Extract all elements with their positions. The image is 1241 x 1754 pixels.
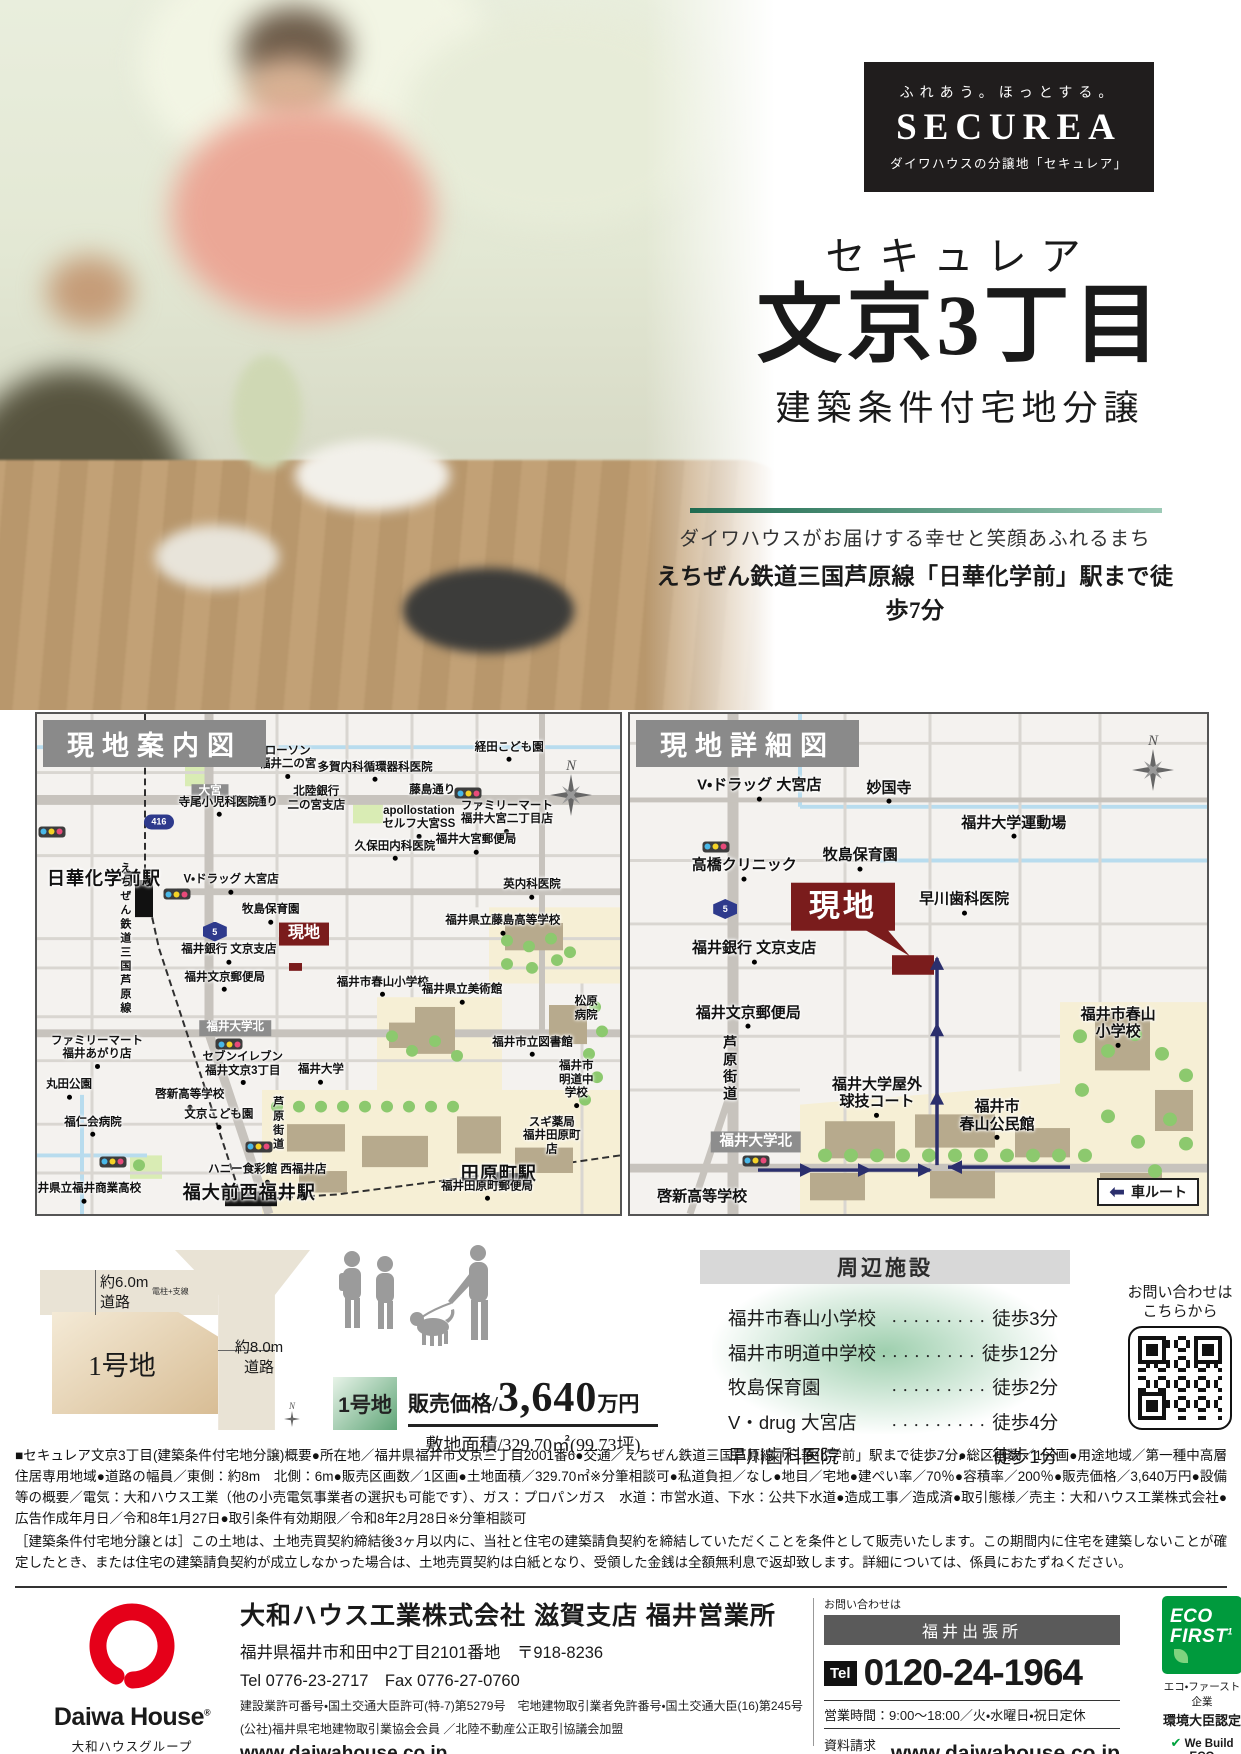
plot-diagram: 1号地 約6.0m 道路 約8.0m 道路 電柱+支線 N [40, 1250, 310, 1430]
map-label: 福大前西福井駅 [183, 1182, 316, 1203]
company-name: 大和ハウス工業株式会社 滋賀支店 福井営業所 [240, 1596, 805, 1632]
request-url: www.daiwahouse.co.jp [891, 1742, 1120, 1754]
brand-subtitle: ダイワハウスの分譲地「セキュレア」 [890, 153, 1128, 172]
traffic-light-icon [38, 826, 65, 837]
price-lot-badge: 1号地 [333, 1377, 397, 1430]
facilities-header: 周辺施設 [700, 1250, 1070, 1284]
map-label: 福井銀行 文京支店 [692, 940, 816, 965]
catch-line1: ダイワハウスがお届けする幸せと笑顔あふれるまち [655, 522, 1175, 551]
property-overview: ■セキュレア文京3丁目(建築条件付宅地分譲)概要●所在地／福井県福井市文京三丁目… [15, 1446, 1227, 1530]
title-condition: 建築条件付宅地分譲 [745, 380, 1175, 431]
salad-jar [233, 355, 303, 469]
road-north-width: 約6.0m 道路 [100, 1273, 148, 1312]
plate [155, 525, 279, 589]
lot-1: 1号地 [52, 1312, 218, 1414]
map-label: 福井県立美術館 [422, 984, 503, 1005]
skillet [403, 568, 574, 653]
map-label: 芦原街道 [271, 1096, 284, 1152]
title-name: 文京3丁目 [745, 279, 1175, 372]
phone-number: 0120-24-1964 [864, 1652, 1082, 1694]
map-label: 久保田内科医院 [355, 840, 436, 861]
map-label: 寺尾小児科医院 [179, 796, 260, 817]
map-label: 牧島保育園 [823, 847, 898, 872]
map-label: スギ薬局 福井田原町店 [518, 1116, 586, 1157]
map-label: 福井市明道中学校 [554, 1060, 598, 1108]
map-label: 福井市立図書館 [492, 1036, 573, 1057]
map-label: 福井県立藤島高等学校 [445, 915, 560, 936]
brand-tagline: ふれあう。ほっとする。 [900, 82, 1119, 102]
left-arrow-icon: ⬅ [1109, 1183, 1125, 1202]
lot-1-label: 1号地 [88, 1344, 156, 1383]
map-label: 日華化学前駅 [47, 868, 161, 889]
branch-office-bar: 福井出張所 [824, 1615, 1120, 1645]
map-label: えちぜん鉄道三国芦原線 [118, 862, 131, 1016]
company-url: www.daiwahouse.co.jp [240, 1743, 805, 1754]
business-hours: 営業時間：9:00～18:00／火・水曜日・祝日定休 [824, 1700, 1120, 1729]
price-label: 販売価格/ [408, 1392, 498, 1416]
map-label: 早川歯科医院 [919, 891, 1009, 916]
map-label: 丸田公園 [46, 1079, 92, 1100]
traffic-light-icon [216, 1039, 243, 1050]
plot-compass-icon: N [284, 1402, 300, 1432]
facility-row: V・drug 大宮店・・・・・・・・・徒歩4分 [728, 1409, 1058, 1435]
route-badge: 416 [144, 814, 174, 829]
eco-first-logo: ECO FIRST1 [1162, 1596, 1241, 1674]
main-title: セキュレア 文京3丁目 建築条件付宅地分譲 [745, 235, 1175, 431]
price-block: 販売価格/3,640万円 敷地面積/329.70㎡(99.73坪) [408, 1374, 658, 1457]
we-build-eco: ✔ We Build ECO [1160, 1735, 1241, 1754]
traffic-light-icon [245, 1141, 272, 1152]
daiwa-group-label: 大和ハウスグループ [52, 1736, 212, 1754]
map-label: 啓新高等学校 [155, 1089, 224, 1110]
facility-row: 福井市明道中学校・・・・・・・・・徒歩12分 [728, 1340, 1058, 1366]
eco-line-1: エコ・ファースト企業 [1160, 1679, 1241, 1709]
map-label: ハニー食彩館 西福井店 [208, 1164, 326, 1185]
tel-badge: Tel [824, 1661, 857, 1686]
daiwa-logo-block: Daiwa House® 大和ハウスグループ [52, 1598, 212, 1754]
license-line-1: 建設業許可番号・国土交通大臣許可(特-7)第5279号 宅地建物取引業者免許番号… [240, 1697, 805, 1714]
map-label: 藤島通り [409, 784, 455, 798]
map-label: 福井大学 [298, 1064, 344, 1085]
site-marker: 現地 [791, 882, 895, 931]
map-label: 牧島保育園 [242, 904, 300, 925]
footer-divider [813, 1598, 814, 1746]
map-right-header: 現地詳細図 [636, 720, 859, 767]
license-line-2: (公社)福井県宅地建物取引業協会会員 ／北陸不動産公正取引協議会加盟 [240, 1720, 805, 1737]
contact-ask-label: お問い合わせは [824, 1596, 1120, 1612]
map-label: 高橋クリニック [692, 857, 797, 882]
map-label: 福井大学北 [711, 1131, 802, 1152]
request-label: 資料請求は [824, 1735, 883, 1754]
road-east-width: 約8.0m 道路 [230, 1338, 288, 1377]
qr-caption-2: こちらから [1142, 1303, 1217, 1320]
map-label: セブンイレブン 福井文京3丁目 [203, 1051, 284, 1085]
map-label: 松原病院 [569, 995, 603, 1022]
car-route-label: 車ルート [1131, 1182, 1187, 1202]
traffic-light-icon [742, 1155, 769, 1166]
price-unit: 万円 [597, 1392, 639, 1416]
car-route-legend: ⬅ 車ルート [1097, 1178, 1199, 1206]
map-label: 芦原街道 [722, 1035, 739, 1103]
map-label: V・ドラッグ 大宮店 [183, 874, 278, 895]
brand-box: ふれあう。ほっとする。 SECUREA ダイワハウスの分譲地「セキュレア」 [864, 62, 1154, 192]
traffic-light-icon [455, 788, 482, 799]
brand-logo: SECUREA [896, 109, 1122, 146]
company-address: 福井県福井市和田中2丁目2101番地 〒918-8236 [240, 1639, 805, 1663]
catch-copy: ダイワハウスがお届けする幸せと笑顔あふれるまち えちぜん鉄道三国芦原線「日華化学… [655, 522, 1175, 625]
traffic-light-icon [99, 1156, 126, 1167]
utility-pole-label: 電柱+支線 [152, 1286, 189, 1297]
map-label: 福井大宮郵便局 [436, 834, 517, 855]
daiwa-house-logo-icon [84, 1598, 180, 1694]
map-label: ファミリーマート 福井大宮二丁目店 [461, 799, 553, 833]
price-lot-label: 1号地 [338, 1389, 392, 1419]
leaf-icon [1174, 1649, 1188, 1663]
map-label: 北陸銀行 二の宮支店 [288, 785, 346, 812]
map-label: 福井市春山小学校 [1074, 1005, 1163, 1047]
company-tel-fax: Tel 0776-23-2717 Fax 0776-27-0760 [240, 1667, 805, 1691]
map-label: 福井大学運動場 [961, 814, 1066, 839]
map-label: 妙国寺 [867, 779, 912, 804]
map-label: 福仁会病院 [64, 1116, 122, 1137]
facility-row: 牧島保育園・・・・・・・・・徒歩2分 [728, 1374, 1058, 1400]
legal-notes: ■セキュレア文京3丁目(建築条件付宅地分譲)概要●所在地／福井県福井市文京三丁目… [15, 1446, 1227, 1588]
catch-line2: えちぜん鉄道三国芦原線「日華化学前」駅まで徒歩7分 [655, 557, 1175, 625]
map-label: ファミリーマート 福井あがり店 [51, 1034, 143, 1068]
daiwa-house-wordmark: Daiwa House® [52, 1703, 212, 1732]
map-label: 多賀内科循環器科医院 [318, 761, 433, 782]
area-guide-map: 現地案内図 N ローソン 福井二の宮多賀内科循環器科医院経田こども園大宮藤島通り… [35, 712, 622, 1216]
map-label: ローソン 福井二の宮 [259, 744, 317, 778]
eco-line-2: 環境大臣認定 [1160, 1710, 1241, 1729]
map-label: 福井文京郵便局 [184, 971, 265, 992]
contact-block: お問い合わせは 福井出張所 Tel 0120-24-1964 営業時間：9:00… [824, 1596, 1120, 1754]
map-left-header: 現地案内図 [43, 720, 266, 767]
map-label: 福井大学北 [199, 1020, 271, 1036]
qr-panel: お問い合わせは こちらから [1118, 1284, 1241, 1430]
check-icon: ✔ [1170, 1735, 1181, 1750]
map-label: 英内科医院 [503, 879, 561, 900]
price-value: 3,640 [498, 1375, 598, 1421]
map-label: 福井大学屋外 球技コート [832, 1075, 922, 1117]
map-label: 福井市 春山公民館 [959, 1098, 1034, 1140]
map-label: 啓新高等学校 [657, 1188, 747, 1206]
site-marker: 現地 [279, 923, 329, 946]
map-label: 経田こども園 [475, 741, 544, 762]
eco-first-block: ECO FIRST1 エコ・ファースト企業 環境大臣認定 ✔ We Build … [1160, 1596, 1241, 1754]
qr-caption-1: お問い合わせは [1127, 1284, 1232, 1301]
map-label: 文京こども園 [184, 1109, 253, 1130]
coral-sweater [171, 107, 435, 320]
map-label: V・ドラッグ 大宮店 [697, 777, 821, 802]
facility-row: 福井市春山小学校・・・・・・・・・徒歩3分 [728, 1305, 1058, 1331]
company-info: 大和ハウス工業株式会社 滋賀支店 福井営業所 福井県福井市和田中2丁目2101番… [240, 1596, 805, 1754]
traffic-light-icon [702, 841, 729, 852]
map-label: 福井市春山小学校 [337, 976, 429, 997]
flyer-page: ふれあう。ほっとする。 SECUREA ダイワハウスの分譲地「セキュレア」 セキ… [0, 0, 1241, 1754]
qr-code [1128, 1326, 1232, 1430]
map-label: 福井銀行 文京支店 [181, 944, 276, 965]
conditions-note: ［建築条件付宅地分譲とは］この土地は、土地売買契約締結後3ヶ月以内に、当社と住宅… [15, 1532, 1227, 1574]
pedestrian-silhouettes [330, 1243, 510, 1347]
compass-icon: N [1132, 734, 1174, 796]
map-label: 福井田原町郵便局 [441, 1180, 533, 1201]
green-divider [690, 508, 1162, 513]
plate [295, 440, 450, 511]
compass-icon: N [550, 759, 592, 821]
traffic-light-icon [163, 889, 190, 900]
map-label: 福井文京郵便局 [696, 1004, 801, 1029]
title-kana: セキュレア [745, 235, 1175, 279]
map-label: 福井県立福井商業高校 [35, 1183, 141, 1204]
site-detail-map: 現地詳細図 N ⬅ 車ルート V・ドラッグ 大宮店妙国寺高橋クリニック牧島保育園… [628, 712, 1209, 1216]
